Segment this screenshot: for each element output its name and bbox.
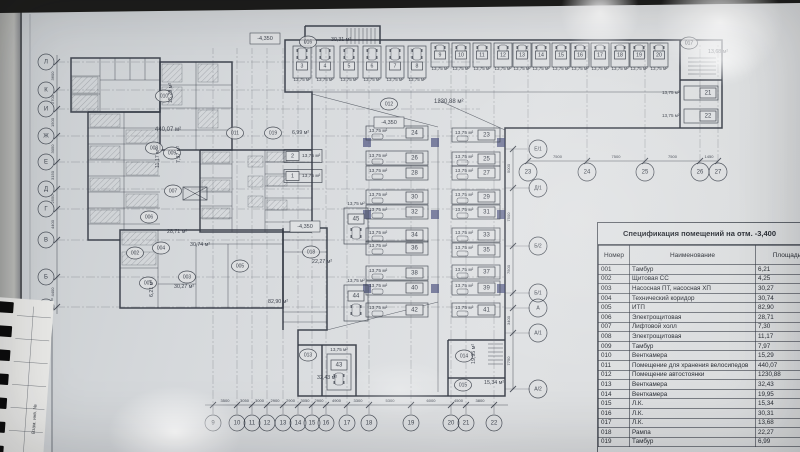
spec-cell-number: 002 — [599, 274, 630, 284]
stall-number: 40 — [411, 286, 418, 292]
axis-bubble-label: 22 — [491, 421, 498, 427]
spec-cell-name: Технический коридор — [630, 293, 756, 303]
stall-area-label: 13,75 м² — [340, 77, 358, 82]
spec-cell-area: 7,30 — [756, 322, 800, 332]
spec-cell-name: Щитовая СС — [630, 274, 756, 284]
car-wheel — [376, 49, 378, 52]
car-symbol — [372, 134, 383, 139]
storage-cell — [202, 208, 230, 219]
spec-cell-area: 13,68 — [756, 418, 800, 428]
spec-cell-number: 016 — [599, 408, 630, 418]
spec-cell-number: 009 — [599, 341, 630, 351]
storage-cell — [162, 64, 182, 82]
car-wheel — [390, 49, 392, 52]
room-area-label: 30,31 м² — [331, 37, 351, 43]
stall-area-label: 13,75 м² — [302, 153, 321, 159]
column-marker — [363, 138, 371, 147]
axis-bubble-label: 17 — [344, 421, 351, 427]
car-wheel — [536, 46, 538, 49]
axis-bubble-label: 14 — [295, 421, 302, 427]
stall-area-label: 13,75 м² — [455, 305, 474, 311]
car-symbol — [457, 136, 468, 141]
car-wheel — [435, 46, 437, 49]
spec-cell-number: 010 — [599, 351, 630, 361]
stall-number: 17 — [597, 53, 603, 59]
dim-value: 3150 — [50, 170, 55, 180]
spec-row: 007Лифтовой холл7,30 — [599, 322, 800, 332]
axis-bubble-label: 11 — [249, 421, 256, 427]
stall-number: 6 — [371, 64, 374, 70]
axis-bubble-label: А — [536, 306, 540, 312]
dim-value: 7500 — [668, 154, 678, 159]
spec-cell-area: 11,17 — [756, 332, 800, 342]
spec-cell-area: 15,29 — [756, 351, 800, 361]
spec-cell-area: 4,25 — [756, 274, 800, 284]
spec-row: 017Л.К.13,68 — [599, 418, 800, 428]
stall-area-label: 13,75 м² — [513, 66, 531, 71]
car-wheel — [465, 46, 467, 49]
dim-value: 5300 — [386, 398, 396, 403]
spec-cell-name: Тамбур — [630, 265, 756, 275]
car-symbol — [457, 160, 468, 165]
car-wheel — [654, 46, 656, 49]
stall-number: 45 — [353, 217, 360, 223]
spec-row: 005ИТП82,90 — [599, 303, 800, 313]
room-number: 002 — [131, 251, 140, 257]
storage-cell — [90, 178, 120, 191]
spec-col-header-2: Площадь, м² — [756, 246, 800, 265]
stall-area-label: 13,75 м² — [452, 66, 470, 71]
car-symbol — [413, 48, 421, 60]
spec-header-row: НомерНаименованиеПлощадь, м² — [599, 246, 800, 265]
stall-number: 7 — [394, 64, 397, 70]
storage-cell — [248, 196, 263, 207]
stall-area-label: 13,75 м² — [455, 192, 474, 198]
spec-cell-name: Тамбур — [630, 341, 756, 351]
car-wheel — [643, 46, 645, 49]
stall-area-label: 13,75 м² — [455, 283, 474, 289]
stall-number: 13 — [519, 53, 525, 59]
stall-area-label: 13,75 м² — [532, 66, 550, 71]
storage-cell — [248, 156, 263, 167]
car-wheel — [376, 56, 378, 59]
car-wheel — [351, 228, 353, 231]
car-wheel — [545, 46, 547, 49]
room-number: 007 — [169, 189, 178, 195]
car-wheel — [351, 312, 353, 315]
spec-cell-name: Электрощитовая — [630, 332, 756, 342]
spec-cell-number: 015 — [599, 399, 630, 409]
spec-row: 011Помещение для хранения велосипедов440… — [599, 360, 800, 370]
binding-tab — [0, 325, 12, 337]
spec-cell-number: 012 — [599, 370, 630, 380]
car-wheel — [486, 46, 488, 49]
storage-cell — [72, 77, 98, 93]
car-wheel — [360, 228, 362, 231]
room-area-label: 6,21 м² — [149, 280, 155, 297]
car-symbol — [372, 249, 383, 254]
room-area-label: 1230,88 м² — [434, 99, 463, 105]
stall-area-label: 13,75 м² — [302, 173, 321, 179]
car-wheel — [477, 46, 479, 49]
stall-number: 44 — [353, 294, 360, 300]
dim-value: 3400 — [506, 315, 511, 325]
dim-value: 3050 — [301, 398, 311, 403]
spec-cell-number: 001 — [599, 265, 630, 275]
axis-bubble-label: В — [44, 238, 48, 244]
room-area-label: 440,07 м² — [155, 127, 181, 133]
stall-number: 15 — [558, 53, 564, 59]
storage-cell — [202, 152, 230, 163]
stall-area-label: 13,75 м² — [369, 230, 388, 236]
stall-number: 8 — [416, 64, 419, 70]
stall-number: 37 — [483, 270, 490, 276]
spec-cell-area: 7,97 — [756, 341, 800, 351]
stall-number: 1 — [291, 174, 294, 180]
spec-cell-name: Венткамера — [630, 351, 756, 361]
binding-tab — [0, 397, 7, 409]
car-wheel — [399, 56, 401, 59]
room-area-label: 19,95 м² — [471, 344, 477, 364]
spec-cell-name: Помещение для хранения велосипедов — [630, 360, 756, 370]
stall-number: 24 — [411, 131, 418, 137]
dim-value: 3800 — [476, 398, 486, 403]
stall-number: 16 — [577, 53, 583, 59]
spec-row: 001Тамбур6,21 — [599, 265, 800, 275]
car-wheel — [367, 49, 369, 52]
spec-cell-area: 440,07 — [756, 360, 800, 370]
storage-cell — [90, 146, 120, 159]
car-wheel — [498, 46, 500, 49]
spec-row: 019Тамбур6,99 — [599, 437, 800, 447]
stall-number: 39 — [483, 286, 490, 292]
spec-cell-name: Венткамера — [630, 380, 756, 390]
car-wheel — [456, 46, 458, 49]
parking-stall-43 — [327, 354, 351, 390]
room-number: 003 — [183, 275, 192, 281]
car-wheel — [421, 49, 423, 52]
car-wheel — [360, 235, 362, 238]
spec-cell-area: 22,27 — [756, 428, 800, 438]
dim-value: 7500 — [612, 154, 622, 159]
stall-number: 18 — [617, 53, 623, 59]
car-wheel — [297, 49, 299, 52]
axis-bubble-label: 27 — [715, 170, 722, 176]
room-area-label: 6,99 м² — [292, 130, 309, 136]
spec-table-title: Спецификация помещений на отм. -3,400 — [598, 223, 800, 245]
stall-number: 21 — [705, 91, 712, 97]
column-marker — [497, 284, 505, 293]
room-area-label: 30,74 м² — [190, 242, 210, 248]
car-symbol — [391, 48, 399, 60]
room-number: 012 — [385, 102, 394, 108]
dim-value: 7750 — [506, 356, 511, 366]
stall-area-label: 13,75 м² — [455, 267, 474, 273]
column-marker — [497, 138, 505, 147]
car-wheel — [634, 46, 636, 49]
storage-cell — [202, 180, 230, 191]
car-symbol — [352, 227, 360, 239]
binding-tab — [0, 373, 9, 385]
car-wheel — [344, 56, 346, 59]
car-wheel — [412, 49, 414, 52]
axis-bubble-label: Д/1 — [534, 186, 542, 192]
stall-area-label: 13,75 м² — [431, 66, 449, 71]
spec-row: 015Л.К.15,34 — [599, 399, 800, 409]
stall-number: 41 — [483, 308, 490, 314]
stall-area-label: 13,75 м² — [455, 168, 474, 174]
car-symbol — [372, 213, 383, 218]
dim-value: 4500 — [454, 398, 464, 403]
stall-number: 35 — [483, 248, 490, 254]
axis-bubble-label: Г — [44, 207, 48, 213]
spec-row: 012Помещение автостоянки1230,88 — [599, 370, 800, 380]
axis-bubble-label: 18 — [366, 421, 373, 427]
spec-cell-number: 003 — [599, 284, 630, 294]
elevation-mark: -4,350 — [257, 36, 273, 42]
spec-cell-name: Л.К. — [630, 418, 756, 428]
column-marker — [431, 138, 439, 147]
spec-row: 018Рампа22,27 — [599, 428, 800, 438]
dim-value: 2900 — [286, 398, 296, 403]
spec-cell-number: 019 — [599, 437, 630, 447]
dim-value: 2900 — [271, 398, 281, 403]
spec-cell-name: Рампа — [630, 428, 756, 438]
spec-cell-name: Л.К. — [630, 408, 756, 418]
room-number: 019 — [269, 131, 278, 137]
car-wheel — [344, 49, 346, 52]
stall-number: 19 — [636, 53, 642, 59]
axis-bubble-label: 9 — [211, 421, 215, 427]
axis-bubble-label: Б/1 — [534, 291, 542, 297]
dim-value: 2900 — [315, 398, 325, 403]
spec-cell-name: Электрощитовая — [630, 312, 756, 322]
stall-area-label: 13,75 м² — [591, 66, 609, 71]
spec-row: 013Венткамера32,43 — [599, 380, 800, 390]
car-wheel — [360, 312, 362, 315]
storage-cell — [126, 162, 158, 175]
car-symbol — [457, 289, 468, 294]
axis-bubble-label: Л — [44, 60, 48, 66]
car-symbol — [352, 304, 360, 316]
car-symbol — [457, 198, 468, 203]
spec-col-header-0: Номер — [599, 246, 630, 265]
stall-area-label: 13,75 м² — [369, 207, 388, 213]
car-wheel — [507, 46, 509, 49]
binding-corner: Взам. инв. № — [0, 296, 54, 452]
spec-cell-number: 007 — [599, 322, 630, 332]
spec-table-grid: НомерНаименованиеПлощадь, м² 001Тамбур6,… — [598, 245, 800, 447]
column-marker — [431, 210, 439, 219]
dim-value: 7500 — [553, 154, 563, 159]
stall-number: 23 — [483, 133, 490, 139]
axis-bubble-label: 26 — [697, 170, 704, 176]
stall-area-label: 13,75 м² — [293, 77, 311, 82]
stall-number: 31 — [483, 210, 490, 216]
spec-cell-number: 017 — [599, 418, 630, 428]
spec-cell-number: 014 — [599, 389, 630, 399]
stall-number: 20 — [656, 53, 662, 59]
spec-cell-number: 004 — [599, 293, 630, 303]
stall-area-label: 13,75 м² — [455, 130, 474, 136]
dim-value: 3500 — [221, 398, 231, 403]
car-wheel — [399, 49, 401, 52]
car-symbol — [372, 198, 383, 203]
axis-bubble-label: Д — [44, 187, 48, 193]
car-wheel — [320, 56, 322, 59]
stall-area-label: 13,75 м² — [369, 168, 388, 174]
room-area-label: 82,90 м² — [268, 299, 288, 305]
car-wheel — [615, 46, 617, 49]
room-number: 011 — [231, 131, 239, 137]
axis-bubble-label: К — [44, 88, 48, 94]
axis-bubble-label: 13 — [280, 421, 287, 427]
spec-row: 004Технический коридор30,74 — [599, 293, 800, 303]
dim-value: 4400 — [50, 219, 55, 229]
car-wheel — [353, 56, 355, 59]
spec-cell-name: Тамбур — [630, 437, 756, 447]
car-wheel — [329, 56, 331, 59]
car-wheel — [329, 49, 331, 52]
stall-area-label: 13,75 м² — [386, 77, 404, 82]
stall-area-label: 13,75 м² — [662, 113, 680, 118]
room-number: 006 — [145, 215, 154, 221]
stall-number: 28 — [411, 171, 418, 177]
axis-bubble-label: И — [44, 107, 48, 113]
car-wheel — [575, 46, 577, 49]
room-area-label: 15,34 м² — [484, 380, 504, 386]
car-wheel — [663, 46, 665, 49]
spec-row: 003Насосная ПТ, насосная ХП30,27 — [599, 284, 800, 294]
car-wheel — [343, 374, 345, 377]
stall-number: 36 — [411, 246, 418, 252]
car-wheel — [351, 305, 353, 308]
car-wheel — [306, 56, 308, 59]
spec-cell-area: 6,21 — [756, 265, 800, 275]
car-symbol — [457, 174, 468, 179]
stall-area-label: 13,75 м² — [630, 66, 648, 71]
axis-bubble-label: Б — [44, 275, 48, 281]
stall-number: 3 — [301, 64, 304, 70]
dim-value: 3600 — [50, 71, 55, 81]
storage-cell — [72, 95, 98, 111]
stall-number: 34 — [411, 233, 418, 239]
stall-area-label: 13,75 м² — [455, 154, 474, 160]
storage-cell — [126, 130, 158, 143]
dim-value: 5000 — [506, 163, 511, 173]
axis-bubble-label: 20 — [448, 421, 455, 427]
spec-cell-area: 1230,88 — [756, 370, 800, 380]
car-wheel — [412, 56, 414, 59]
storage-cell — [90, 114, 120, 127]
car-symbol — [345, 48, 353, 60]
stall-area-label: 13,75 м² — [330, 347, 348, 352]
spec-table-body: 001Тамбур6,21002Щитовая СС4,25003Насосна… — [599, 265, 800, 447]
spec-cell-name: Венткамера — [630, 389, 756, 399]
stall-area-label: 13,75 м² — [369, 192, 388, 198]
car-symbol — [457, 251, 468, 256]
spec-cell-area: 28,71 — [756, 312, 800, 322]
car-wheel — [444, 46, 446, 49]
car-symbol — [457, 311, 468, 316]
car-wheel — [343, 381, 345, 384]
stall-area-label: 13,75 м² — [455, 207, 474, 213]
car-wheel — [360, 305, 362, 308]
car-symbol — [372, 289, 383, 294]
spec-cell-name: ИТП — [630, 303, 756, 313]
storage-cell — [126, 194, 158, 207]
stall-number: 42 — [411, 308, 418, 314]
dim-value: 1500 — [50, 117, 55, 127]
car-wheel — [353, 49, 355, 52]
car-wheel — [604, 46, 606, 49]
stall-number: 5 — [348, 64, 351, 70]
dim-value: 7500 — [506, 212, 511, 222]
dim-value: 1450 — [705, 154, 715, 159]
stall-area-label: 13,75 м² — [363, 77, 381, 82]
room-number: 016 — [304, 40, 313, 46]
spec-cell-area: 82,90 — [756, 303, 800, 313]
spec-cell-name: Помещение автостоянки — [630, 370, 756, 380]
stall-number: 27 — [483, 171, 490, 177]
spec-cell-number: 005 — [599, 303, 630, 313]
spec-row: 014Венткамера19,95 — [599, 389, 800, 399]
spec-cell-number: 018 — [599, 428, 630, 438]
dim-value: 3300 — [354, 398, 364, 403]
room-number: 015 — [459, 383, 468, 389]
axis-bubble-label: Е/1 — [534, 147, 542, 153]
dim-value: 3050 — [50, 144, 55, 154]
stall-number: 33 — [483, 233, 490, 239]
photo-of-blueprint: 3500305030002900290030502900490033005300… — [0, 0, 800, 452]
car-wheel — [320, 49, 322, 52]
stall-number: 30 — [411, 195, 418, 201]
spec-row: 008Электрощитовая11,17 — [599, 332, 800, 342]
column-marker — [497, 210, 505, 219]
stall-number: 43 — [336, 363, 343, 369]
car-symbol — [372, 311, 383, 316]
stall-area-label: 13,75 м² — [347, 201, 365, 206]
spec-row: 009Тамбур7,97 — [599, 341, 800, 351]
stall-number: 12 — [500, 53, 506, 59]
room-area-label: 7,97 м² — [176, 146, 182, 163]
axis-bubble-label: 21 — [463, 421, 470, 427]
stall-area-label: 13,75 м² — [650, 66, 668, 71]
axis-bubble-label: 24 — [584, 170, 591, 176]
axis-bubble-label: 25 — [642, 170, 649, 176]
spec-table: Спецификация помещений на отм. -3,400 Но… — [597, 222, 800, 452]
axis-bubble-label: Б/2 — [534, 244, 542, 250]
stall-area-label: 13,75 м² — [662, 90, 680, 95]
room-area-label: 28,71 м² — [167, 229, 187, 235]
stall-area-label: 13,75 м² — [494, 66, 512, 71]
car-wheel — [297, 56, 299, 59]
stall-number: 32 — [411, 210, 418, 216]
dim-value: 4900 — [332, 398, 342, 403]
spec-cell-area: 30,27 — [756, 284, 800, 294]
room-area-label: 32,43 м² — [317, 375, 337, 381]
binding-tab — [0, 421, 5, 433]
room-area-label: 13,68 м² — [708, 49, 728, 55]
spec-cell-area: 30,74 — [756, 293, 800, 303]
room-number: 013 — [304, 353, 313, 359]
storage-cell — [267, 200, 287, 210]
stall-area-label: 13,75 м² — [369, 243, 388, 249]
car-wheel — [526, 46, 528, 49]
car-wheel — [306, 49, 308, 52]
room-area-label: 11,17 м² — [155, 148, 161, 168]
stall-area-label: 13,75 м² — [369, 128, 388, 134]
